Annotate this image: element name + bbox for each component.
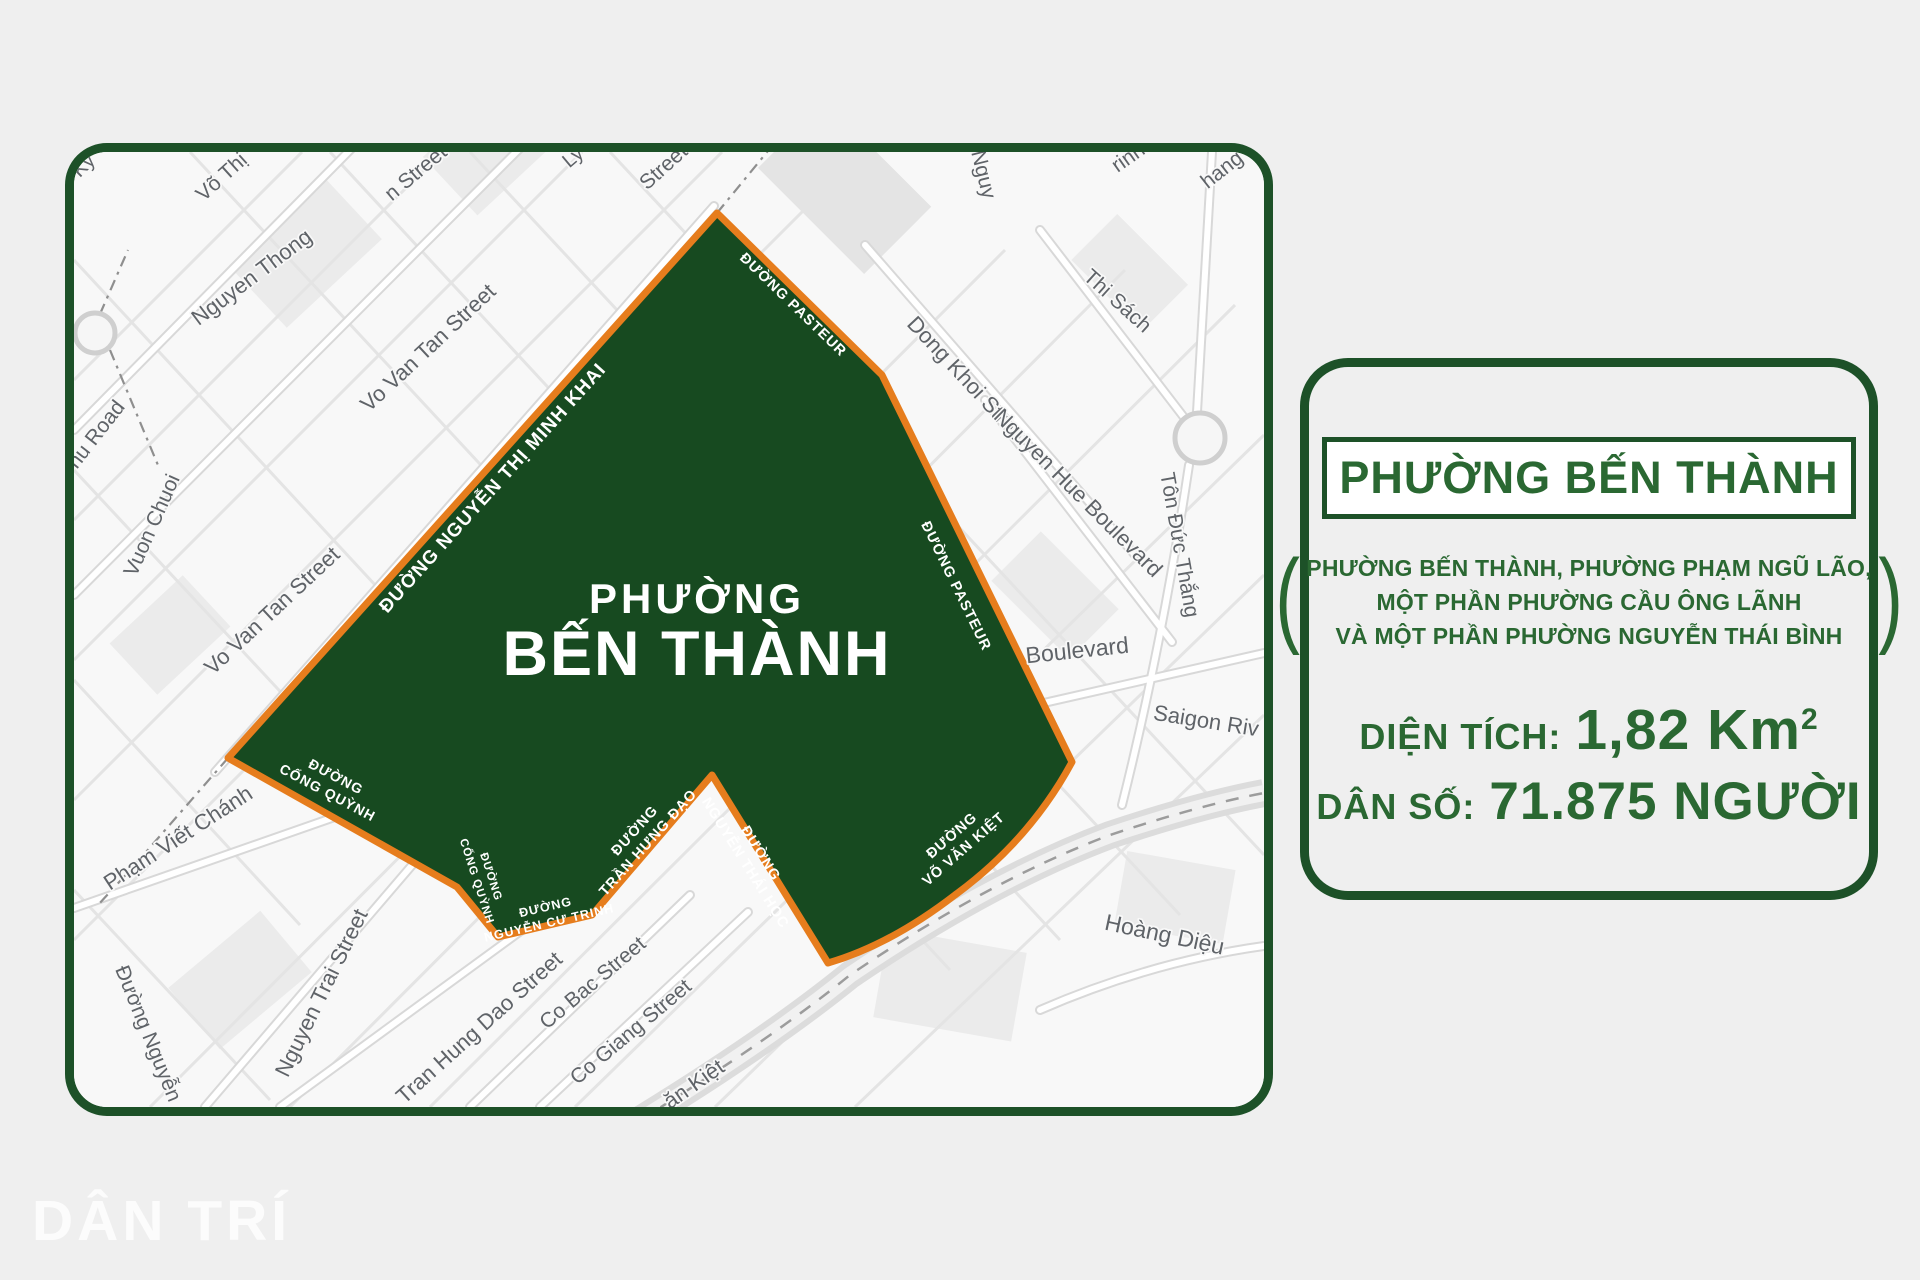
roundabout-ton-duc-thang: [1175, 413, 1225, 463]
ward-name-line2: BẾN THÀNH: [503, 618, 892, 689]
ward-title: PHƯỜNG BẾN THÀNH: [1339, 452, 1838, 504]
population-value: 71.875 NGƯỜI: [1489, 771, 1861, 832]
merger-note-line: PHƯỜNG BẾN THÀNH, PHƯỜNG PHẠM NGŨ LÃO,: [1306, 551, 1871, 585]
roundabout-west: [75, 313, 115, 353]
dantri-logo: DÂN TRÍ: [32, 1188, 291, 1254]
area-label: DIỆN TÍCH:: [1359, 716, 1561, 758]
area-value-number: 1,82 Km: [1575, 698, 1801, 762]
map-panel: Kỳ Võ Thị n Street Ly Street Nguy rinh h…: [65, 143, 1273, 1116]
population-label: DÂN SỐ:: [1316, 786, 1475, 828]
map-svg: Kỳ Võ Thị n Street Ly Street Nguy rinh h…: [74, 152, 1264, 1107]
merger-note-line: VÀ MỘT PHẦN PHƯỜNG NGUYỄN THÁI BÌNH: [1306, 619, 1871, 653]
population-stat: DÂN SỐ: 71.875 NGƯỜI: [1309, 771, 1869, 832]
merger-note-lines: PHƯỜNG BẾN THÀNH, PHƯỜNG PHẠM NGŨ LÃO, M…: [1306, 551, 1871, 653]
area-value-superscript: 2: [1801, 703, 1819, 736]
infographic-root: { "colors": { "page_background": "#efefe…: [0, 0, 1920, 1280]
open-paren: (: [1275, 547, 1300, 657]
area-stat: DIỆN TÍCH: 1,82 Km2: [1309, 697, 1869, 763]
ward-title-box: PHƯỜNG BẾN THÀNH: [1322, 437, 1856, 519]
merger-note: ( PHƯỜNG BẾN THÀNH, PHƯỜNG PHẠM NGŨ LÃO,…: [1309, 547, 1869, 657]
ward-name-line1: PHƯỜNG: [589, 574, 805, 622]
merger-note-line: MỘT PHẦN PHƯỜNG CẦU ÔNG LÃNH: [1306, 585, 1871, 619]
info-card: PHƯỜNG BẾN THÀNH ( PHƯỜNG BẾN THÀNH, PHƯ…: [1300, 358, 1878, 900]
close-paren: ): [1878, 547, 1903, 657]
area-value: 1,82 Km2: [1575, 697, 1818, 763]
